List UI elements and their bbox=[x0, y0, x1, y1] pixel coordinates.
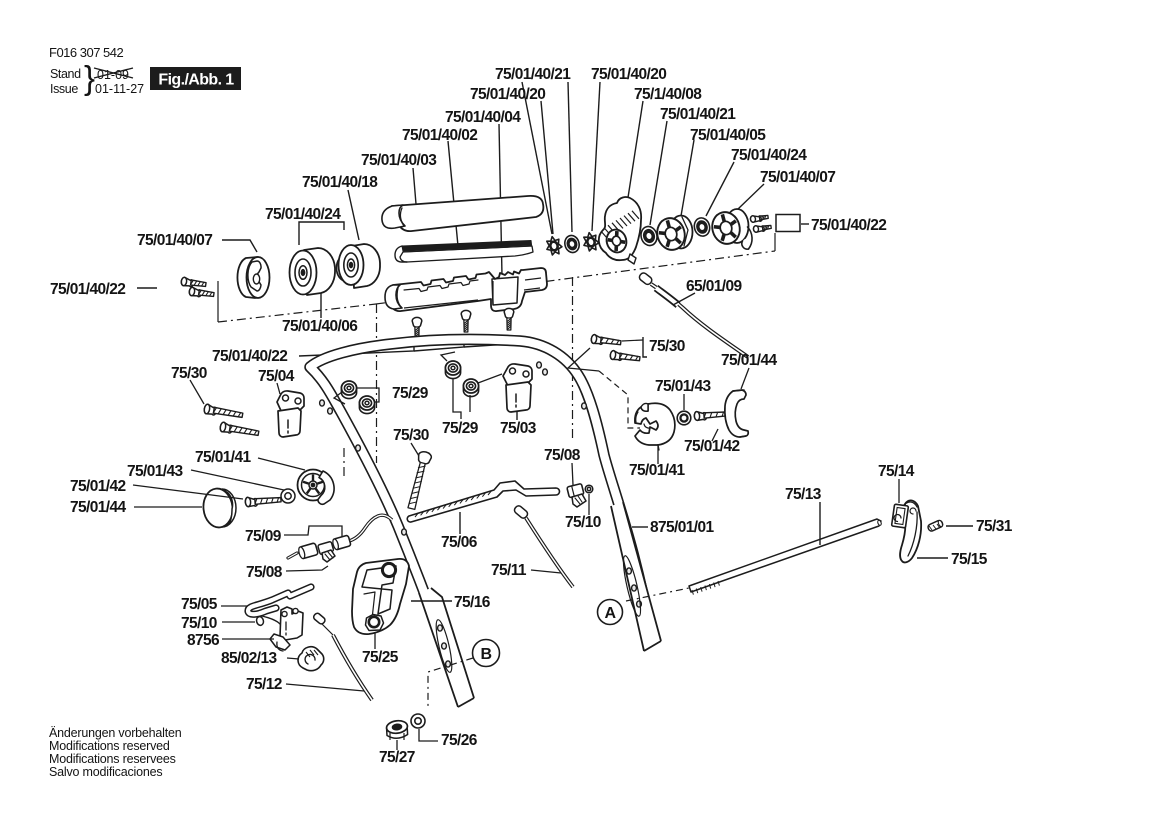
svg-text:65/01/09: 65/01/09 bbox=[686, 278, 743, 295]
svg-text:75/01/41: 75/01/41 bbox=[195, 449, 252, 466]
svg-text:75/01/40/07: 75/01/40/07 bbox=[760, 169, 835, 186]
svg-text:B: B bbox=[481, 646, 492, 663]
svg-text:75/01/44: 75/01/44 bbox=[70, 499, 127, 516]
svg-text:Salvo modificaciones: Salvo modificaciones bbox=[49, 765, 162, 779]
svg-text:75/01/40/06: 75/01/40/06 bbox=[282, 318, 358, 335]
svg-text:75/01/40/24: 75/01/40/24 bbox=[731, 147, 807, 164]
svg-text:75/1/40/08: 75/1/40/08 bbox=[634, 86, 702, 103]
svg-text:Modifications reservees: Modifications reservees bbox=[49, 752, 176, 766]
svg-text:75/30: 75/30 bbox=[171, 365, 207, 382]
svg-text:75/06: 75/06 bbox=[441, 534, 478, 551]
svg-text:75/30: 75/30 bbox=[393, 427, 429, 444]
svg-text:75/08: 75/08 bbox=[544, 447, 581, 464]
svg-text:75/01/40/22: 75/01/40/22 bbox=[811, 217, 886, 234]
svg-text:75/13: 75/13 bbox=[785, 486, 822, 503]
svg-text:75/01/40/21: 75/01/40/21 bbox=[495, 66, 571, 83]
svg-text:75/08: 75/08 bbox=[246, 564, 283, 581]
svg-text:75/29: 75/29 bbox=[442, 420, 479, 437]
svg-text:75/01/40/05: 75/01/40/05 bbox=[690, 127, 766, 144]
svg-text:75/30: 75/30 bbox=[649, 338, 685, 355]
svg-text:75/01/40/04: 75/01/40/04 bbox=[445, 109, 521, 126]
svg-text:75/25: 75/25 bbox=[362, 649, 399, 666]
svg-text:75/05: 75/05 bbox=[181, 596, 218, 613]
svg-text:75/01/42: 75/01/42 bbox=[70, 478, 126, 495]
svg-text:8756: 8756 bbox=[187, 632, 220, 649]
svg-text:Stand: Stand bbox=[50, 67, 81, 81]
svg-text:875/01/01: 875/01/01 bbox=[650, 519, 715, 536]
svg-text:Fig./Abb. 1: Fig./Abb. 1 bbox=[158, 72, 234, 89]
svg-text:75/01/40/02: 75/01/40/02 bbox=[402, 127, 477, 144]
svg-text:75/12: 75/12 bbox=[246, 676, 282, 693]
svg-text:75/01/40/22: 75/01/40/22 bbox=[50, 281, 125, 298]
svg-text:75/01/40/20: 75/01/40/20 bbox=[470, 86, 545, 103]
svg-text:75/14: 75/14 bbox=[878, 463, 915, 480]
svg-text:75/01/44: 75/01/44 bbox=[721, 352, 778, 369]
svg-text:Änderungen vorbehalten: Änderungen vorbehalten bbox=[49, 726, 182, 740]
svg-text:}: } bbox=[84, 59, 95, 96]
svg-text:75/10: 75/10 bbox=[565, 514, 601, 531]
svg-text:75/09: 75/09 bbox=[245, 528, 282, 545]
svg-text:01-11-27: 01-11-27 bbox=[95, 82, 144, 96]
svg-text:75/01/40/07: 75/01/40/07 bbox=[137, 232, 212, 249]
svg-text:75/01/43: 75/01/43 bbox=[127, 463, 184, 480]
svg-text:75/01/42: 75/01/42 bbox=[684, 438, 740, 455]
svg-text:75/10: 75/10 bbox=[181, 615, 217, 632]
svg-text:Modifications reserved: Modifications reserved bbox=[49, 739, 170, 753]
svg-text:75/16: 75/16 bbox=[454, 594, 491, 611]
svg-text:75/01/40/20: 75/01/40/20 bbox=[591, 66, 666, 83]
svg-text:75/15: 75/15 bbox=[951, 551, 988, 568]
svg-text:75/01/40/22: 75/01/40/22 bbox=[212, 348, 287, 365]
svg-text:A: A bbox=[605, 605, 617, 622]
svg-text:75/27: 75/27 bbox=[379, 749, 415, 766]
svg-text:75/31: 75/31 bbox=[976, 518, 1013, 535]
svg-text:75/01/41: 75/01/41 bbox=[629, 462, 686, 479]
svg-text:F016 307 542: F016 307 542 bbox=[49, 45, 124, 60]
svg-text:75/01/43: 75/01/43 bbox=[655, 378, 712, 395]
svg-text:75/01/40/24: 75/01/40/24 bbox=[265, 206, 341, 223]
svg-text:75/29: 75/29 bbox=[392, 385, 429, 402]
svg-text:85/02/13: 85/02/13 bbox=[221, 650, 278, 667]
svg-text:75/01/40/03: 75/01/40/03 bbox=[361, 152, 437, 169]
svg-text:Issue: Issue bbox=[50, 82, 78, 96]
svg-text:75/26: 75/26 bbox=[441, 732, 478, 749]
svg-text:75/01/40/18: 75/01/40/18 bbox=[302, 174, 378, 191]
svg-text:75/04: 75/04 bbox=[258, 368, 295, 385]
svg-text:75/11: 75/11 bbox=[491, 562, 527, 579]
svg-text:75/03: 75/03 bbox=[500, 420, 537, 437]
svg-text:75/01/40/21: 75/01/40/21 bbox=[660, 106, 736, 123]
